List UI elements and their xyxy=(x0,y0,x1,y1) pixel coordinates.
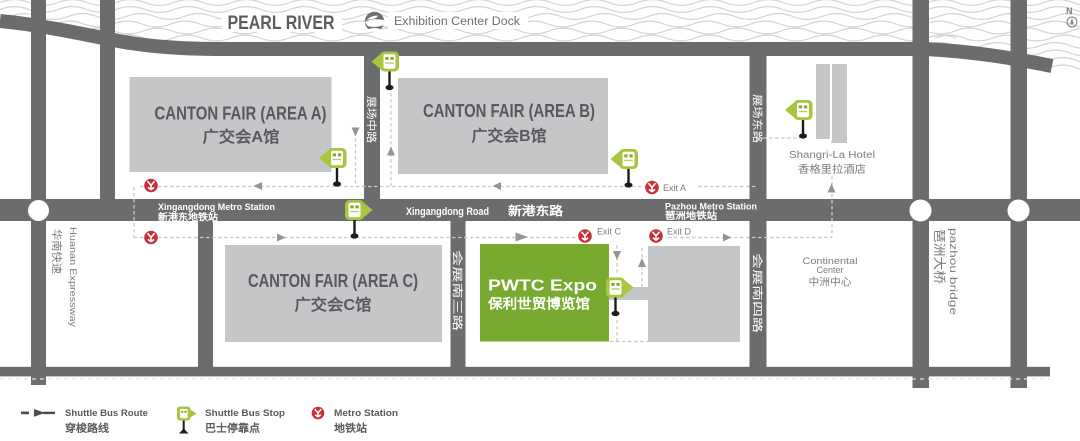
svg-text:CANTON FAIR (AREA C): CANTON FAIR (AREA C) xyxy=(248,271,418,291)
svg-text:PEARL RIVER: PEARL RIVER xyxy=(228,13,335,34)
svg-text:CANTON FAIR (AREA B): CANTON FAIR (AREA B) xyxy=(423,101,595,121)
svg-text:Shuttle Bus Stop: Shuttle Bus Stop xyxy=(205,408,285,419)
svg-text:Exit D: Exit D xyxy=(667,227,692,237)
svg-text:会展南四路: 会展南四路 xyxy=(751,253,764,334)
svg-text:广交会A馆: 广交会A馆 xyxy=(203,128,280,146)
svg-text:巴士停靠点: 巴士停靠点 xyxy=(205,422,261,435)
svg-text:地铁站: 地铁站 xyxy=(334,422,368,435)
svg-text:Pazhou Metro Station: Pazhou Metro Station xyxy=(665,202,757,212)
svg-text:保利世贸博览馆: 保利世贸博览馆 xyxy=(487,296,590,312)
svg-text:Shuttle Bus Route: Shuttle Bus Route xyxy=(65,408,148,419)
svg-text:穿梭路线: 穿梭路线 xyxy=(65,422,110,435)
svg-text:Exit A: Exit A xyxy=(663,183,686,193)
svg-text:中洲中心: 中洲中心 xyxy=(809,276,852,289)
svg-text:香格里拉酒店: 香格里拉酒店 xyxy=(798,163,866,176)
svg-text:Huanan Expressway: Huanan Expressway xyxy=(67,227,78,327)
svg-text:广交会B馆: 广交会B馆 xyxy=(472,127,547,145)
svg-text:pazhou bridge: pazhou bridge xyxy=(947,228,958,316)
svg-text:琶洲大桥: 琶洲大桥 xyxy=(932,229,946,285)
svg-text:新港东路: 新港东路 xyxy=(508,203,564,218)
svg-text:CANTON FAIR (AREA A): CANTON FAIR (AREA A) xyxy=(155,104,327,124)
svg-text:展场中路: 展场中路 xyxy=(365,96,378,144)
svg-text:N: N xyxy=(1066,6,1073,16)
svg-text:Xingangdong Metro Station: Xingangdong Metro Station xyxy=(158,202,275,212)
svg-text:新港东地铁站: 新港东地铁站 xyxy=(158,212,219,224)
svg-text:会展南三路: 会展南三路 xyxy=(451,250,464,332)
svg-text:Center: Center xyxy=(817,265,844,276)
svg-text:Xingangdong Road: Xingangdong Road xyxy=(406,206,489,218)
svg-text:Exhibition Center Dock: Exhibition Center Dock xyxy=(394,16,520,28)
svg-text:展场东路: 展场东路 xyxy=(751,94,764,144)
svg-text:华南快速: 华南快速 xyxy=(50,229,64,274)
svg-text:PWTC Expo: PWTC Expo xyxy=(488,278,597,295)
svg-text:琶洲地铁站: 琶洲地铁站 xyxy=(665,210,718,222)
svg-text:广交会C馆: 广交会C馆 xyxy=(295,296,372,314)
svg-text:Metro Station: Metro Station xyxy=(334,408,398,419)
svg-text:Exit C: Exit C xyxy=(597,227,622,237)
svg-text:Shangri-La Hotel: Shangri-La Hotel xyxy=(789,150,875,161)
